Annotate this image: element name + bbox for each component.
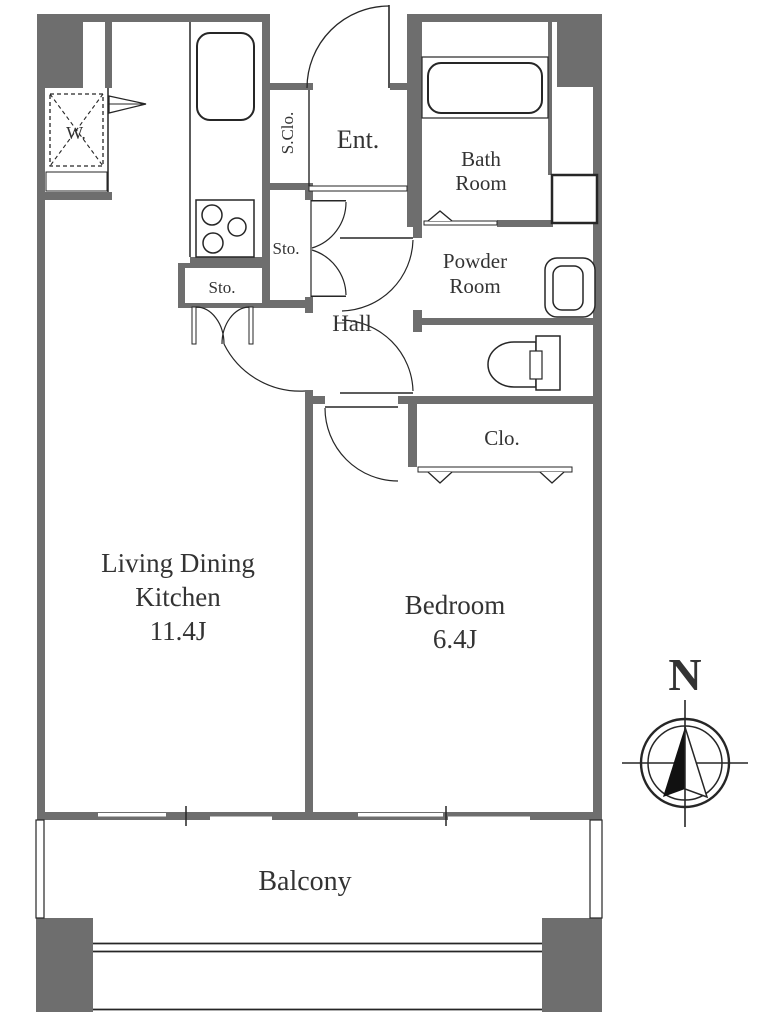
floor-plan: N Living Dining Kitchen 11.4J Bedroom 6.… (0, 0, 762, 1024)
hall-doors (311, 200, 413, 393)
compass-north-label: N (668, 649, 701, 700)
ldk-door-arc (224, 344, 305, 391)
bathtub-icon (428, 63, 542, 113)
wall-segment (398, 396, 602, 404)
washbasin-bowl (553, 266, 583, 310)
wall-segment (262, 300, 313, 308)
ldk-size-label: 11.4J (150, 616, 207, 646)
ldk-label-line1: Living Dining (101, 548, 255, 578)
corner-pillar (557, 20, 593, 87)
room-labels: Living Dining Kitchen 11.4J Bedroom 6.4J… (66, 112, 520, 897)
bath-door-threshold (424, 221, 497, 225)
balcony-side-wall (36, 820, 44, 918)
compass-needle-dark (663, 727, 685, 797)
balcony-side-wall (590, 820, 602, 918)
hall-closet-arc (312, 202, 346, 248)
bifold-petal (222, 307, 249, 344)
wall-segment (262, 183, 313, 190)
washer-space (46, 88, 146, 192)
bedroom-window-pane (448, 817, 530, 821)
bath-label-line2: Room (455, 171, 506, 195)
kitchen-sink-icon (197, 33, 254, 120)
ldk-window-pane (210, 817, 272, 821)
corner-pillar (45, 22, 83, 88)
hall-label: Hall (332, 311, 372, 336)
compass-needle-light (685, 727, 707, 797)
washer-label: W. (66, 123, 86, 143)
wall-segment (37, 14, 45, 820)
wall-segment (497, 220, 553, 227)
powder-label-line2: Room (449, 274, 500, 298)
door-swing-arc (307, 6, 389, 88)
shoe-closet-label: S.Clo. (278, 112, 297, 155)
washer-pan (46, 172, 107, 191)
kitchen (190, 22, 254, 257)
powder-label-line1: Powder (443, 249, 507, 273)
ldk-label-line2: Kitchen (135, 582, 221, 612)
wall-segment (190, 257, 263, 263)
wall-segment (262, 14, 270, 303)
balcony (36, 820, 602, 1010)
partition-wall (305, 390, 313, 820)
burner-icon (203, 233, 223, 253)
powder-door-arc (342, 240, 413, 311)
closet-label: Clo. (484, 426, 520, 450)
wall-segment (408, 404, 417, 467)
floor-plan-svg: N Living Dining Kitchen 11.4J Bedroom 6.… (0, 0, 762, 1024)
bedroom-window-pane (358, 813, 443, 817)
wall-segment (413, 190, 422, 238)
toilet-bowl-icon (488, 342, 536, 387)
wall-segment (105, 22, 112, 88)
wall-segment (37, 192, 112, 200)
bedroom-doors (325, 407, 572, 483)
toilet-tank-detail (530, 351, 542, 379)
bedroom-label: Bedroom (405, 590, 506, 620)
ldk-window-pane (98, 813, 166, 817)
storage-kitchen-label: Sto. (209, 278, 236, 297)
entrance-label: Ent. (337, 125, 380, 154)
balcony-label: Balcony (258, 866, 351, 897)
bedroom-size-label: 6.4J (433, 624, 477, 654)
burner-icon (202, 205, 222, 225)
pipe-space-box (552, 175, 597, 223)
storage-doors (192, 307, 305, 391)
closet-folding-mark (428, 472, 452, 483)
walls (36, 14, 602, 1012)
bifold-jamb (249, 307, 253, 344)
wall-segment (37, 14, 268, 22)
bedroom-door-arc (325, 408, 398, 481)
wall-segment (313, 396, 325, 404)
wall-segment (178, 263, 185, 308)
wall-segment (178, 263, 263, 268)
bifold-jamb (192, 307, 196, 344)
entrance-door (307, 5, 407, 191)
wall-segment (413, 318, 602, 325)
compass: N (622, 649, 748, 827)
powder-room (545, 258, 595, 317)
toilet-room (488, 336, 560, 390)
closet-folding-mark (540, 472, 564, 483)
closet-track (418, 467, 572, 472)
wall-segment (593, 14, 602, 820)
entrance-threshold (309, 186, 407, 191)
bath-label-line1: Bath (461, 147, 501, 171)
storage-hall-label: Sto. (273, 239, 300, 258)
bath-folding-door-mark (428, 211, 452, 221)
hall-closet-arc (312, 250, 346, 295)
bifold-petal (196, 307, 224, 344)
balcony-pillar (542, 918, 602, 1012)
burner-icon (228, 218, 246, 236)
balcony-pillar (36, 918, 93, 1012)
wall-segment (262, 83, 313, 90)
